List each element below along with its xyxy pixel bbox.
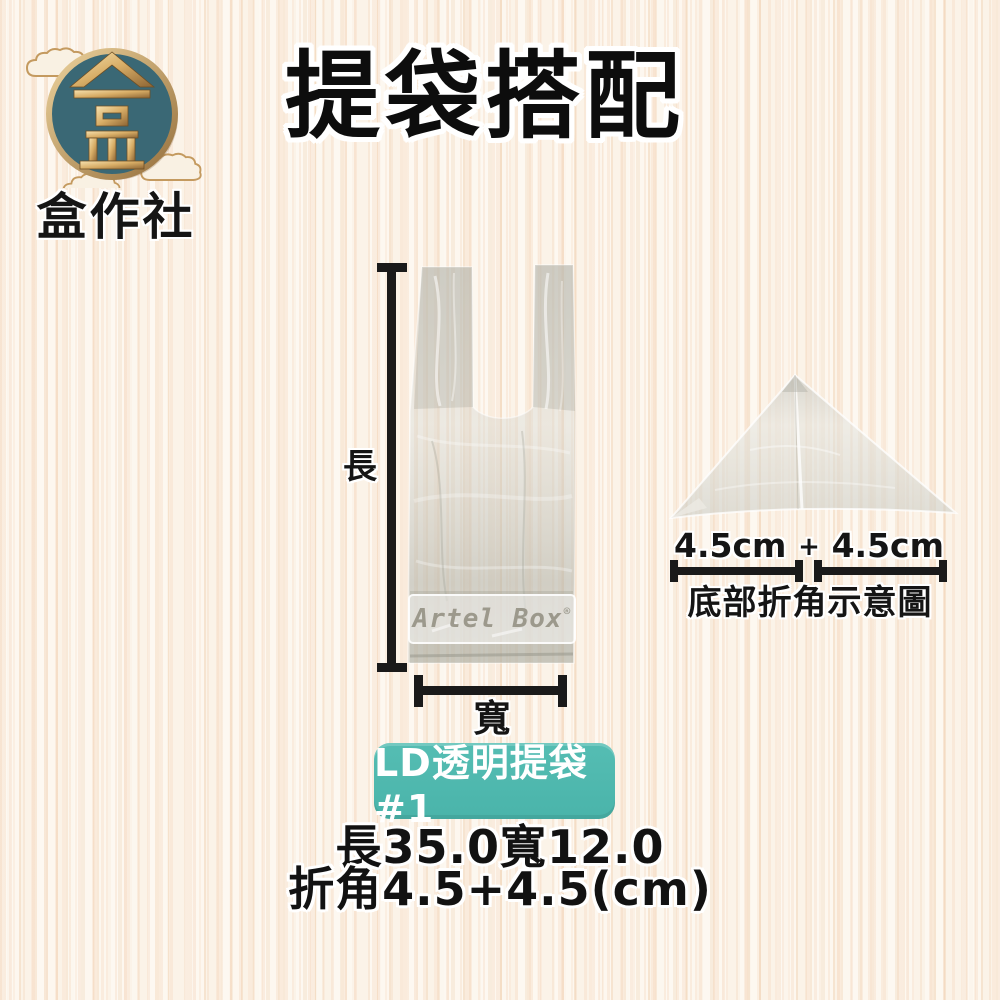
product-badge: LD透明提袋#1 — [374, 743, 615, 819]
spec-line-2: 折角4.5+4.5(cm) — [230, 866, 770, 912]
width-dimension-cap-right — [558, 675, 567, 707]
dimension-cap — [795, 560, 803, 582]
corner-dimension-line-left — [670, 567, 803, 575]
length-dimension-cap-bottom — [377, 663, 407, 672]
plus-sign: + — [798, 531, 820, 560]
dimension-cap — [939, 560, 947, 582]
corner-dimension-line-right — [814, 567, 947, 575]
page-title: 提袋搭配 — [230, 50, 740, 145]
width-dimension-line — [414, 686, 567, 695]
length-dimension-line — [387, 263, 396, 672]
folded-corner-illustration — [655, 370, 965, 525]
dimension-cap — [670, 560, 678, 582]
poster: 盒作社 提袋搭配 Artel Box® — [0, 0, 1000, 1000]
watermark-badge: Artel Box® — [408, 594, 576, 644]
corner-measure-left: 4.5cm — [674, 529, 786, 562]
dimension-cap — [814, 560, 822, 582]
corner-measure-right: 4.5cm — [832, 529, 944, 562]
brand-logo-icon — [26, 20, 204, 188]
watermark-text: Artel Box — [413, 606, 563, 632]
length-label: 長 — [338, 450, 382, 484]
corner-measurements: 4.5cm + 4.5cm — [666, 529, 952, 562]
watermark-registered-mark: ® — [564, 606, 572, 617]
corner-caption: 底部折角示意圖 — [655, 586, 965, 620]
brand-name: 盒作社 — [18, 192, 214, 242]
